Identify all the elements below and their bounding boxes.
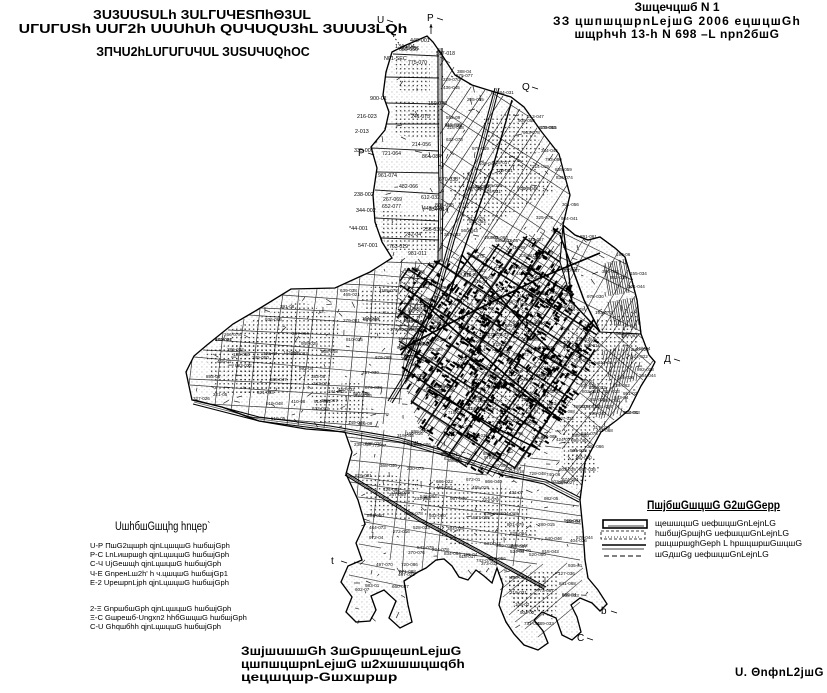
svg-text:316-032: 316-032 bbox=[479, 332, 495, 337]
svg-text:195-04: 195-04 bbox=[463, 552, 478, 557]
svg-text:163-058: 163-058 bbox=[555, 292, 571, 297]
svg-text:846-066: 846-066 bbox=[355, 393, 372, 398]
svg-text:647-084: 647-084 bbox=[363, 317, 380, 322]
svg-text:482-066: 482-066 bbox=[399, 184, 418, 190]
svg-text:307-07: 307-07 bbox=[419, 373, 433, 378]
svg-text:230-073: 230-073 bbox=[407, 466, 424, 471]
svg-text:b: b bbox=[601, 606, 607, 617]
svg-text:660-087: 660-087 bbox=[392, 584, 409, 589]
svg-text:t: t bbox=[331, 556, 334, 567]
svg-text:178-024: 178-024 bbox=[390, 327, 407, 332]
svg-text:552-016: 552-016 bbox=[610, 275, 627, 280]
svg-text:622-061: 622-061 bbox=[515, 377, 531, 382]
svg-text:135-050: 135-050 bbox=[233, 352, 250, 357]
svg-text:925-07: 925-07 bbox=[495, 332, 509, 337]
svg-text:317-029: 317-029 bbox=[593, 425, 610, 430]
svg-text:568-048: 568-048 bbox=[321, 349, 338, 354]
svg-text:584-031: 584-031 bbox=[497, 90, 514, 95]
svg-text:190-06: 190-06 bbox=[616, 252, 631, 257]
svg-text:900-01: 900-01 bbox=[370, 96, 387, 102]
svg-text:333-062: 333-062 bbox=[580, 404, 597, 409]
svg-text:841-014: 841-014 bbox=[534, 255, 550, 260]
svg-text:Q: Q bbox=[522, 82, 530, 93]
svg-text:233-065: 233-065 bbox=[414, 496, 431, 501]
svg-text:242-04: 242-04 bbox=[405, 232, 421, 238]
svg-text:214-056: 214-056 bbox=[412, 142, 431, 148]
svg-text:267-064: 267-064 bbox=[292, 331, 309, 336]
svg-text:108-02: 108-02 bbox=[515, 602, 530, 607]
svg-text:160-016: 160-016 bbox=[406, 431, 423, 436]
svg-text:455-019: 455-019 bbox=[472, 485, 489, 490]
svg-text:256-030: 256-030 bbox=[423, 227, 442, 233]
svg-text:887-065: 887-065 bbox=[473, 515, 490, 520]
svg-text:267-069: 267-069 bbox=[383, 197, 402, 203]
svg-text:341-04: 341-04 bbox=[524, 421, 538, 426]
svg-text:197-089: 197-089 bbox=[420, 356, 436, 361]
svg-text:848-09: 848-09 bbox=[540, 250, 554, 255]
svg-text:185-078: 185-078 bbox=[381, 288, 398, 293]
svg-text:961-074: 961-074 bbox=[378, 173, 397, 179]
svg-text:628-026: 628-026 bbox=[365, 441, 382, 446]
svg-text:284-044: 284-044 bbox=[639, 373, 656, 378]
svg-text:322-066: 322-066 bbox=[587, 444, 604, 449]
svg-text:472-05: 472-05 bbox=[493, 266, 507, 271]
svg-text:547-001: 547-001 bbox=[358, 243, 378, 249]
svg-text:888-051: 888-051 bbox=[483, 451, 499, 456]
svg-text:972-04: 972-04 bbox=[369, 535, 384, 540]
svg-text:248-026: 248-026 bbox=[617, 375, 634, 380]
svg-text:672-01: 672-01 bbox=[466, 477, 481, 482]
svg-text:963-078: 963-078 bbox=[523, 130, 540, 135]
svg-text:949-025: 949-025 bbox=[301, 341, 318, 346]
svg-text:638-083: 638-083 bbox=[520, 302, 536, 307]
svg-text:718-032: 718-032 bbox=[448, 410, 464, 415]
svg-text:812-076: 812-076 bbox=[468, 216, 485, 221]
svg-text:367-032: 367-032 bbox=[444, 232, 461, 237]
svg-text:229-070: 229-070 bbox=[443, 77, 460, 82]
svg-text:523-040: 523-040 bbox=[505, 323, 521, 328]
svg-text:344-045: 344-045 bbox=[541, 148, 558, 153]
svg-text:225-062: 225-062 bbox=[613, 383, 630, 388]
svg-text:347-074: 347-074 bbox=[313, 381, 330, 386]
svg-text:383-08: 383-08 bbox=[311, 374, 326, 379]
svg-text:813-047: 813-047 bbox=[527, 114, 544, 119]
svg-text:765-019: 765-019 bbox=[559, 304, 575, 309]
svg-text:883-022: 883-022 bbox=[235, 363, 252, 368]
svg-text:182-068: 182-068 bbox=[505, 466, 521, 471]
svg-text:478-032: 478-032 bbox=[547, 389, 563, 394]
svg-text:241-075: 241-075 bbox=[411, 114, 430, 120]
svg-text:130-018: 130-018 bbox=[576, 337, 592, 342]
svg-text:481-011: 481-011 bbox=[403, 318, 420, 323]
svg-text:783-080: 783-080 bbox=[545, 157, 562, 162]
svg-text:845-066: 845-066 bbox=[408, 269, 425, 274]
svg-text:858-084: 858-084 bbox=[574, 358, 590, 363]
svg-text:773-087: 773-087 bbox=[537, 588, 554, 593]
svg-text:502-042: 502-042 bbox=[551, 479, 568, 484]
svg-text:301-056: 301-056 bbox=[562, 202, 579, 207]
svg-text:221-05: 221-05 bbox=[213, 392, 228, 397]
svg-text:344-002: 344-002 bbox=[356, 208, 376, 214]
svg-text:686-022: 686-022 bbox=[436, 479, 453, 484]
svg-text:322-027: 322-027 bbox=[528, 237, 544, 242]
svg-text:612-032: 612-032 bbox=[421, 195, 440, 201]
svg-text:257-030: 257-030 bbox=[362, 370, 379, 375]
svg-text:С: С bbox=[577, 633, 584, 644]
svg-text:967-019: 967-019 bbox=[450, 496, 467, 501]
svg-text:238-002: 238-002 bbox=[354, 192, 374, 198]
svg-text:815-043: 815-043 bbox=[542, 549, 559, 554]
svg-text:834-064: 834-064 bbox=[444, 551, 461, 556]
svg-text:841-068: 841-068 bbox=[559, 581, 576, 586]
svg-text:721-064: 721-064 bbox=[382, 151, 401, 157]
svg-text:835-059: 835-059 bbox=[555, 167, 572, 172]
svg-text:418-088: 418-088 bbox=[513, 265, 529, 270]
svg-text:449-001: 449-001 bbox=[410, 38, 430, 44]
svg-text:667-036: 667-036 bbox=[579, 467, 596, 472]
svg-text:272-016: 272-016 bbox=[393, 529, 410, 534]
svg-text:720-086: 720-086 bbox=[401, 562, 418, 567]
svg-text:431-07: 431-07 bbox=[509, 490, 524, 495]
svg-text:978-030: 978-030 bbox=[587, 294, 604, 299]
svg-text:855-061: 855-061 bbox=[465, 434, 481, 439]
svg-text:459-01: 459-01 bbox=[217, 359, 232, 364]
svg-text:205-061: 205-061 bbox=[519, 253, 535, 258]
svg-text:992-04: 992-04 bbox=[299, 366, 314, 371]
svg-text:603-029: 603-029 bbox=[559, 467, 576, 472]
svg-text:775-070: 775-070 bbox=[408, 60, 427, 66]
svg-text:441-06: 441-06 bbox=[457, 361, 471, 366]
svg-text:143-048: 143-048 bbox=[283, 350, 300, 355]
svg-text:497-070: 497-070 bbox=[376, 562, 393, 567]
svg-text:217-085: 217-085 bbox=[541, 434, 557, 439]
svg-text:866-040: 866-040 bbox=[485, 479, 502, 484]
svg-text:560-04: 560-04 bbox=[562, 592, 577, 597]
svg-text:294-053: 294-053 bbox=[494, 349, 510, 354]
svg-text:769-046: 769-046 bbox=[398, 336, 415, 341]
svg-text:504-02: 504-02 bbox=[520, 610, 535, 615]
svg-text:424-077: 424-077 bbox=[556, 437, 573, 442]
svg-text:*44-001: *44-001 bbox=[349, 226, 368, 232]
svg-text:Д: Д bbox=[664, 354, 671, 365]
svg-text:384-033: 384-033 bbox=[602, 269, 619, 274]
svg-text:891-061: 891-061 bbox=[580, 234, 597, 239]
svg-text:552-09: 552-09 bbox=[446, 115, 461, 120]
svg-text:893-08: 893-08 bbox=[206, 374, 221, 379]
svg-text:982-05: 982-05 bbox=[544, 496, 559, 501]
svg-text:998-080: 998-080 bbox=[571, 438, 588, 443]
svg-text:499-023: 499-023 bbox=[531, 297, 547, 302]
svg-text:632-078: 632-078 bbox=[446, 137, 463, 142]
svg-text:679-065: 679-065 bbox=[375, 355, 392, 360]
svg-text:891-050: 891-050 bbox=[367, 513, 384, 518]
svg-text:279-081: 279-081 bbox=[343, 318, 360, 323]
svg-text:216-023: 216-023 bbox=[357, 114, 377, 120]
svg-text:729-048: 729-048 bbox=[529, 471, 546, 476]
svg-text:150-020: 150-020 bbox=[575, 455, 592, 460]
svg-text:134-004: 134-004 bbox=[395, 44, 415, 50]
svg-text:410-08: 410-08 bbox=[291, 399, 306, 404]
svg-text:162-070: 162-070 bbox=[544, 365, 560, 370]
svg-text:205-055: 205-055 bbox=[467, 97, 484, 102]
svg-text:936-066: 936-066 bbox=[265, 317, 282, 322]
svg-text:554-019: 554-019 bbox=[570, 448, 587, 453]
svg-text:467-022: 467-022 bbox=[398, 572, 415, 577]
svg-text:422-014: 422-014 bbox=[549, 401, 565, 406]
svg-text:727-016: 727-016 bbox=[506, 369, 522, 374]
svg-text:465-062: 465-062 bbox=[436, 485, 453, 490]
svg-text:155-04: 155-04 bbox=[566, 519, 581, 524]
svg-text:521-053: 521-053 bbox=[257, 390, 274, 395]
svg-text:932-080: 932-080 bbox=[429, 513, 446, 518]
svg-text:891-040: 891-040 bbox=[529, 321, 545, 326]
svg-text:652-077: 652-077 bbox=[382, 204, 401, 210]
svg-text:666-031: 666-031 bbox=[481, 399, 497, 404]
svg-text:575-07: 575-07 bbox=[466, 385, 480, 390]
svg-text:267-069: 267-069 bbox=[389, 492, 406, 497]
svg-text:317-01: 317-01 bbox=[598, 360, 613, 365]
svg-text:914-081: 914-081 bbox=[314, 399, 331, 404]
svg-text:404-036: 404-036 bbox=[570, 538, 587, 543]
svg-text:903-065: 903-065 bbox=[562, 372, 578, 377]
svg-text:646-067: 646-067 bbox=[506, 299, 522, 304]
svg-text:892-028: 892-028 bbox=[637, 367, 654, 372]
svg-text:667-015: 667-015 bbox=[455, 273, 471, 278]
svg-text:219-031: 219-031 bbox=[510, 590, 527, 595]
svg-text:223-076: 223-076 bbox=[482, 497, 499, 502]
svg-text:889-072: 889-072 bbox=[513, 352, 529, 357]
svg-text:707-032: 707-032 bbox=[558, 416, 574, 421]
svg-text:522-059: 522-059 bbox=[427, 347, 443, 352]
svg-text:444-073: 444-073 bbox=[369, 525, 386, 530]
svg-text:525-017: 525-017 bbox=[493, 160, 510, 165]
svg-text:524-06: 524-06 bbox=[510, 549, 525, 554]
svg-text:804-018: 804-018 bbox=[501, 511, 518, 516]
svg-text:870-063: 870-063 bbox=[539, 125, 556, 130]
svg-text:836-074: 836-074 bbox=[556, 175, 573, 180]
svg-text:981-011: 981-011 bbox=[408, 251, 427, 257]
svg-text:731-056: 731-056 bbox=[524, 621, 541, 626]
svg-text:149-047: 149-047 bbox=[348, 420, 365, 425]
svg-text:312-088: 312-088 bbox=[559, 409, 575, 414]
svg-text:504-01: 504-01 bbox=[624, 410, 639, 415]
svg-text:955-063: 955-063 bbox=[491, 235, 508, 240]
svg-text:770-051: 770-051 bbox=[496, 168, 513, 173]
svg-text:P: P bbox=[358, 148, 365, 159]
svg-text:984-041: 984-041 bbox=[561, 216, 578, 221]
svg-text:747-01: 747-01 bbox=[581, 379, 595, 384]
svg-text:199-040: 199-040 bbox=[589, 411, 606, 416]
svg-text:524-022: 524-022 bbox=[631, 354, 648, 359]
svg-text:676-073: 676-073 bbox=[468, 254, 484, 259]
svg-text:639-038: 639-038 bbox=[340, 288, 357, 293]
svg-text:826-081: 826-081 bbox=[355, 473, 372, 478]
svg-text:280-015: 280-015 bbox=[538, 522, 555, 527]
svg-text:763-019: 763-019 bbox=[389, 244, 408, 250]
svg-text:787-025: 787-025 bbox=[505, 418, 521, 423]
svg-text:249-050: 249-050 bbox=[252, 355, 269, 360]
svg-text:325-072: 325-072 bbox=[536, 215, 553, 220]
svg-text:643-04: 643-04 bbox=[614, 395, 629, 400]
svg-text:825-064: 825-064 bbox=[510, 531, 527, 536]
svg-text:635-067: 635-067 bbox=[438, 384, 454, 389]
svg-text:939-058: 939-058 bbox=[536, 373, 552, 378]
svg-text:740-050: 740-050 bbox=[484, 371, 500, 376]
svg-text:2-013: 2-013 bbox=[355, 129, 369, 135]
svg-text:127-036: 127-036 bbox=[558, 571, 575, 576]
svg-text:155-034: 155-034 bbox=[630, 271, 647, 276]
svg-text:477-058: 477-058 bbox=[415, 297, 431, 302]
svg-text:572-03: 572-03 bbox=[517, 186, 532, 191]
svg-text:391-08: 391-08 bbox=[280, 304, 295, 309]
svg-text:919-048: 919-048 bbox=[266, 401, 283, 406]
svg-text:935-01: 935-01 bbox=[568, 563, 583, 568]
svg-text:261-057: 261-057 bbox=[596, 404, 613, 409]
svg-text:633-012: 633-012 bbox=[312, 406, 329, 411]
svg-text:585-047: 585-047 bbox=[270, 377, 287, 382]
svg-text:680-078: 680-078 bbox=[563, 344, 579, 349]
svg-text:384-028: 384-028 bbox=[447, 526, 464, 531]
svg-text:879-038: 879-038 bbox=[365, 385, 382, 390]
svg-text:540-046: 540-046 bbox=[545, 536, 562, 541]
svg-text:214-019: 214-019 bbox=[532, 164, 549, 169]
svg-text:514-031: 514-031 bbox=[484, 189, 501, 194]
svg-text:795-048: 795-048 bbox=[457, 424, 473, 429]
svg-text:801-079: 801-079 bbox=[507, 522, 524, 527]
svg-text:597-018: 597-018 bbox=[436, 51, 455, 57]
svg-text:316-068: 316-068 bbox=[447, 125, 464, 130]
svg-text:417-08: 417-08 bbox=[512, 245, 526, 250]
svg-text:368-040: 368-040 bbox=[380, 463, 397, 468]
svg-text:370-076: 370-076 bbox=[408, 550, 425, 555]
svg-text:602-07: 602-07 bbox=[355, 587, 370, 592]
svg-text:837-04: 837-04 bbox=[525, 409, 539, 414]
svg-text:445-015: 445-015 bbox=[399, 308, 415, 313]
svg-text:436-045: 436-045 bbox=[443, 85, 460, 90]
svg-text:585-014: 585-014 bbox=[584, 343, 600, 348]
svg-text:870-078: 870-078 bbox=[493, 342, 509, 347]
svg-text:315-083: 315-083 bbox=[486, 384, 502, 389]
